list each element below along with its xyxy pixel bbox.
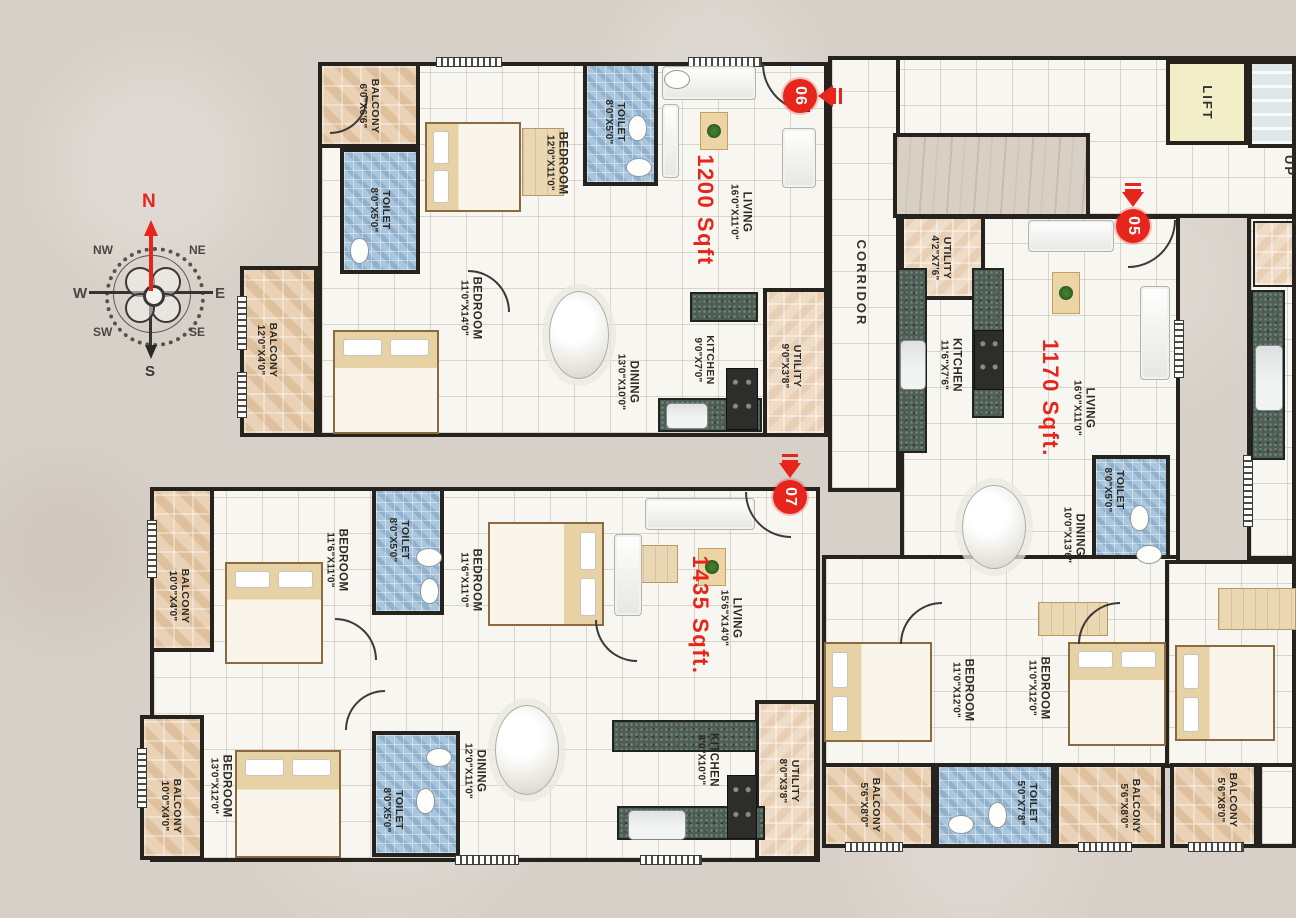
bed [1175,645,1275,741]
entry-arrow-unit06 [818,85,833,107]
washbasin [416,548,442,567]
window [237,372,247,418]
toilet-wc [350,238,369,264]
sofa [662,104,679,178]
dining-table [549,291,609,379]
window [436,57,502,67]
compass-label-n: N [142,191,156,213]
washbasin [664,70,690,89]
staircase [1248,60,1296,148]
entry-wood-deck [893,133,1090,218]
washbasin [626,158,652,177]
kitchen-sink [628,810,686,840]
stove [974,330,1004,390]
toilet-wc [1130,505,1149,531]
bed [1068,642,1166,746]
sofa [645,498,755,530]
wing-balcony-2 [1055,763,1165,848]
kitchen-counter [690,292,758,322]
washbasin [426,748,452,767]
sofa [1028,220,1114,252]
compass-label-nw: NW [93,243,113,257]
dining-table [962,485,1026,569]
bed [824,642,932,742]
window [1078,842,1132,852]
unit-05-badge: 05 [1116,209,1150,243]
unit-07-badge: 07 [773,480,807,514]
kitchen-sink [666,403,708,429]
toilet-wc [988,802,1007,828]
stove [726,368,758,430]
toilet-wc [628,115,647,141]
compass-south-arrowhead [145,345,157,365]
toilet-wc [416,788,435,814]
compass-label-ne: NE [189,243,206,257]
window [237,296,247,350]
door-arc [1078,602,1118,642]
bed [235,750,341,858]
dining-table [495,705,559,795]
sofa [1140,286,1170,380]
compass-label-e: E [215,285,225,302]
armchair [782,128,816,188]
window [1243,455,1253,527]
compass-north-arrowhead [144,213,158,236]
wing-floor-end [1258,763,1296,848]
compass-hub [143,285,165,307]
kitchen-counter [612,720,758,752]
bed [488,522,604,626]
window [1188,842,1244,852]
sofa [614,534,642,616]
kitchen-sink [1255,345,1283,411]
window [845,842,903,852]
compass-label-sw: SW [93,325,112,339]
compass-label-se: SE [189,325,205,339]
bed [425,122,521,212]
stove [727,775,757,839]
window [147,520,157,578]
bed [333,330,439,434]
compass-label-s: S [145,363,155,380]
compass-north-needle [149,227,153,291]
door-arc [335,618,375,658]
unit06-balcony-b [240,266,318,437]
window [137,748,147,808]
unit-06-badge: 06 [783,79,817,113]
door-arc [595,620,635,660]
toilet-wc [420,578,439,604]
window [640,855,702,865]
floor-plan-canvas: BALCONY6'0"X6'6" BEDROOM12'0"X11'0" TOIL… [0,0,1296,918]
window [455,855,519,865]
kitchen-sink [900,340,926,390]
bed [225,562,323,664]
compass-label-w: W [73,285,87,302]
wardrobe [1218,588,1296,630]
plant-table [1052,272,1080,314]
window [1174,320,1184,378]
door-arc [900,602,940,642]
right-unit-utility [1253,221,1294,287]
plant-table [700,112,728,150]
washbasin [1136,545,1162,564]
door-arc [345,690,383,728]
washbasin [948,815,974,834]
